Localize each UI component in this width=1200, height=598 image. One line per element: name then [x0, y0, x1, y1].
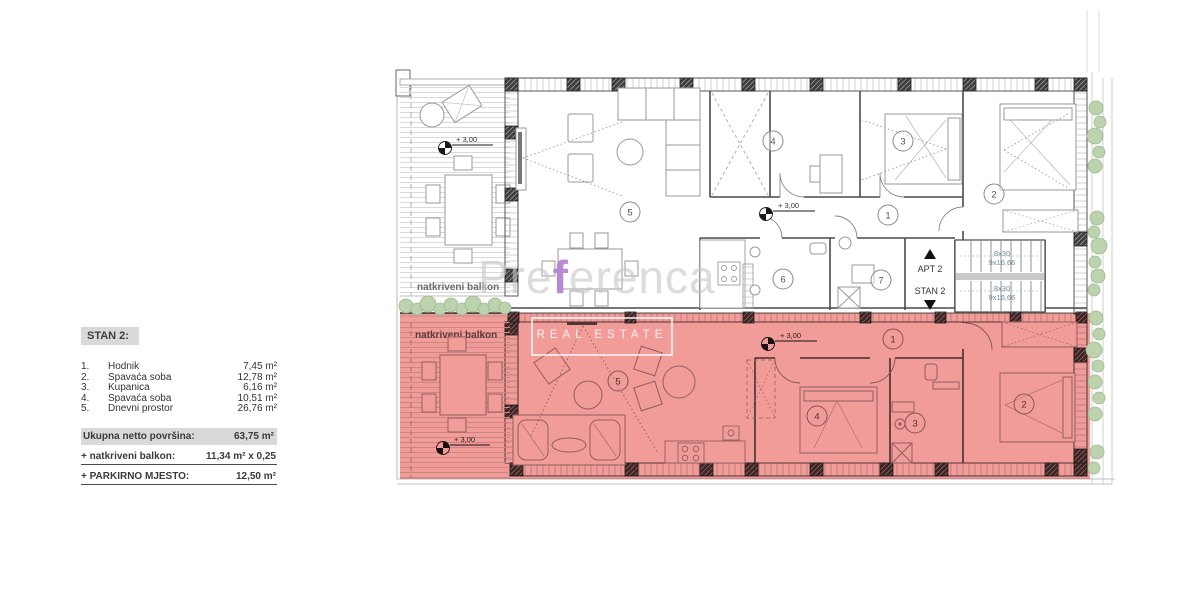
stairs-flight1-steps: 8x30 — [994, 249, 1010, 258]
room-number-circle: 4 — [770, 137, 775, 148]
bedroom-furniture — [810, 104, 1078, 232]
legend-room-list: 1. Hodnik 7,45 m² 2. Spavaća soba 12,78 … — [81, 362, 277, 415]
room-number-circle: 1 — [885, 211, 890, 222]
stairwell: 8x30 9x16,66 8x30 9x16,66 — [955, 240, 1045, 312]
wardrobe — [712, 93, 768, 195]
elevation-label: + 3,00 — [456, 135, 477, 144]
room-number-circle: 6 — [780, 275, 785, 286]
stairs-flight2-steps: 8x30 — [994, 284, 1010, 293]
apartment-legend: STAN 2: 1. Hodnik 7,45 m² 2. Spavaća sob… — [81, 326, 277, 485]
elevation-label: + 3,00 — [778, 201, 799, 210]
balcony-label: natkriveni balkon — [417, 282, 499, 293]
vegetation — [1086, 101, 1107, 474]
bathroom-fixtures — [750, 237, 874, 308]
room-number-circle: 5 — [627, 208, 632, 219]
upper-balcony: + 3,00 natkriveni balkon — [400, 85, 510, 296]
floor-plan-svg: + 3,00 natkriveni balkon — [390, 0, 1120, 500]
parking-value: 12,50 m² — [236, 471, 276, 482]
room-area: 7,45 m² — [243, 362, 277, 373]
total-label: Ukupna netto površina: — [83, 431, 195, 442]
sight-lines — [523, 114, 1068, 196]
stan2-highlight-overlay — [400, 313, 1090, 479]
stairs-flight1-riser: 9x16,66 — [989, 258, 1016, 267]
kitchen — [700, 240, 753, 308]
balcony-value: 11,34 m² x 0,25 — [206, 451, 276, 462]
stairs-flight2-riser: 9x16,66 — [989, 293, 1016, 302]
legend-room-row: 1. Hodnik 7,45 m² — [81, 362, 277, 373]
upper-apartment: + 3,00 natkriveni balkon — [396, 70, 1087, 314]
legend-room-row: 5. Dnevni prostor 26,76 m² — [81, 404, 277, 415]
room-number: 5. — [81, 404, 97, 415]
room-number-circle: 2 — [991, 190, 996, 201]
total-value: 63,75 m² — [234, 431, 274, 442]
floorplan-page: STAN 2: 1. Hodnik 7,45 m² 2. Spavaća sob… — [0, 0, 1200, 598]
room-area: 26,76 m² — [238, 404, 277, 415]
legend-title: STAN 2: — [81, 327, 139, 345]
floor-plan: + 3,00 natkriveni balkon — [390, 0, 1120, 500]
balcony-area-row: + natkriveni balkon: 11,34 m² x 0,25 — [81, 449, 277, 465]
parking-label: + PARKIRNO MJESTO: — [81, 471, 189, 482]
room-name: Hodnik — [97, 362, 243, 373]
stairs-up-arrow-icon — [924, 249, 936, 259]
room-number-circle: 3 — [900, 137, 905, 148]
stairs-down-label: STAN 2 — [915, 286, 946, 296]
balcony-label: + natkriveni balkon: — [81, 451, 175, 462]
parking-row: + PARKIRNO MJESTO: 12,50 m² — [81, 469, 277, 485]
total-area-bar: Ukupna netto površina: 63,75 m² — [81, 428, 277, 445]
room-number-circle: 7 — [878, 276, 883, 287]
stairs-direction-labels: APT 2 STAN 2 — [915, 249, 946, 310]
stairs-up-label: APT 2 — [918, 264, 943, 274]
room-number: 1. — [81, 362, 97, 373]
living-room-furniture — [516, 88, 700, 306]
room-name: Dnevni prostor — [97, 404, 238, 415]
